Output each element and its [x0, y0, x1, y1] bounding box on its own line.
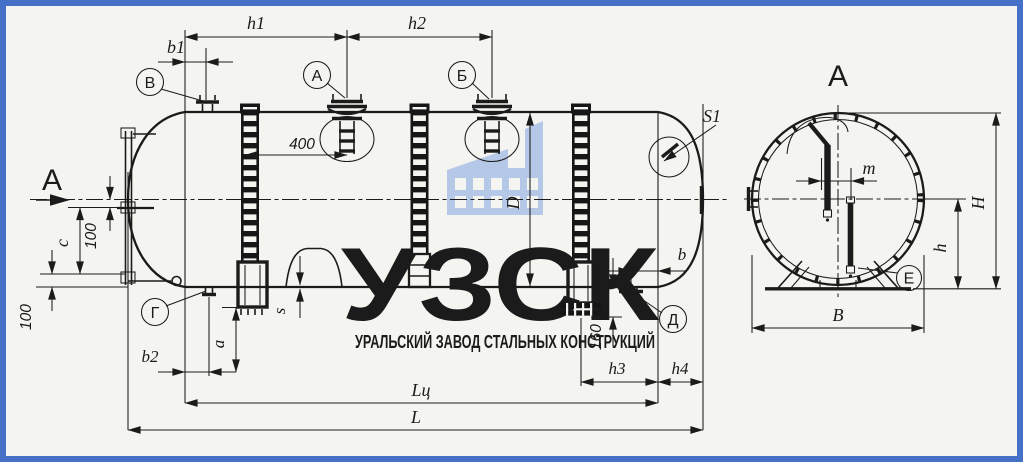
fitting-b-text: Б: [457, 68, 468, 85]
dim-Lc-label: Lц: [410, 380, 430, 400]
dim-h-label: h: [930, 244, 950, 253]
fitting-d-text: Д: [668, 312, 679, 329]
dim-100-lower-label: 100: [18, 304, 35, 330]
dim-h3-label: h3: [609, 359, 626, 378]
dim-D-label: D: [503, 197, 523, 211]
dim-a-label: a: [209, 340, 228, 349]
section-cut-label: А: [42, 164, 62, 197]
dim-400-label: 400: [289, 136, 315, 153]
fitting-a-text: А: [312, 68, 323, 85]
watermark-subtitle-text: УРАЛЬСКИЙ ЗАВОД СТАЛЬНЫХ КОНСТРУКЦИЙ: [355, 331, 655, 352]
drawing-canvas: УЗСК УРАЛЬСКИЙ ЗАВОД СТАЛЬНЫХ КОНСТРУКЦИ…: [0, 0, 1023, 462]
dim-160-label: 160: [588, 324, 605, 350]
dim-100-upper-label: 100: [83, 223, 100, 249]
dim-b1-label: b1: [167, 37, 185, 57]
dim-b2-label: b2: [142, 347, 160, 366]
dim-c-label: c: [52, 239, 72, 247]
dim-h4-label: h4: [672, 359, 690, 378]
dim-B-label: B: [833, 305, 844, 325]
drawing-sheet: УЗСК УРАЛЬСКИЙ ЗАВОД СТАЛЬНЫХ КОНСТРУКЦИ…: [0, 0, 1023, 462]
watermark-logo-text: УЗСК: [341, 227, 660, 343]
dim-h1-label: h1: [247, 13, 265, 33]
dim-s-label: s: [270, 307, 289, 314]
section-lower-dip-pipe: [847, 197, 855, 278]
dim-h2-label: h2: [408, 13, 426, 33]
dim-H-label: H: [968, 196, 988, 211]
section-view-title: А: [828, 60, 848, 93]
fitting-e-text: Е: [904, 271, 915, 288]
dim-L-label: L: [410, 407, 421, 427]
dim-m-label: m: [863, 158, 876, 178]
dim-S1-label: S1: [703, 106, 721, 126]
fitting-v-text: В: [145, 75, 156, 92]
dim-b-label: b: [678, 245, 687, 264]
fitting-g-text: Г: [151, 305, 160, 322]
